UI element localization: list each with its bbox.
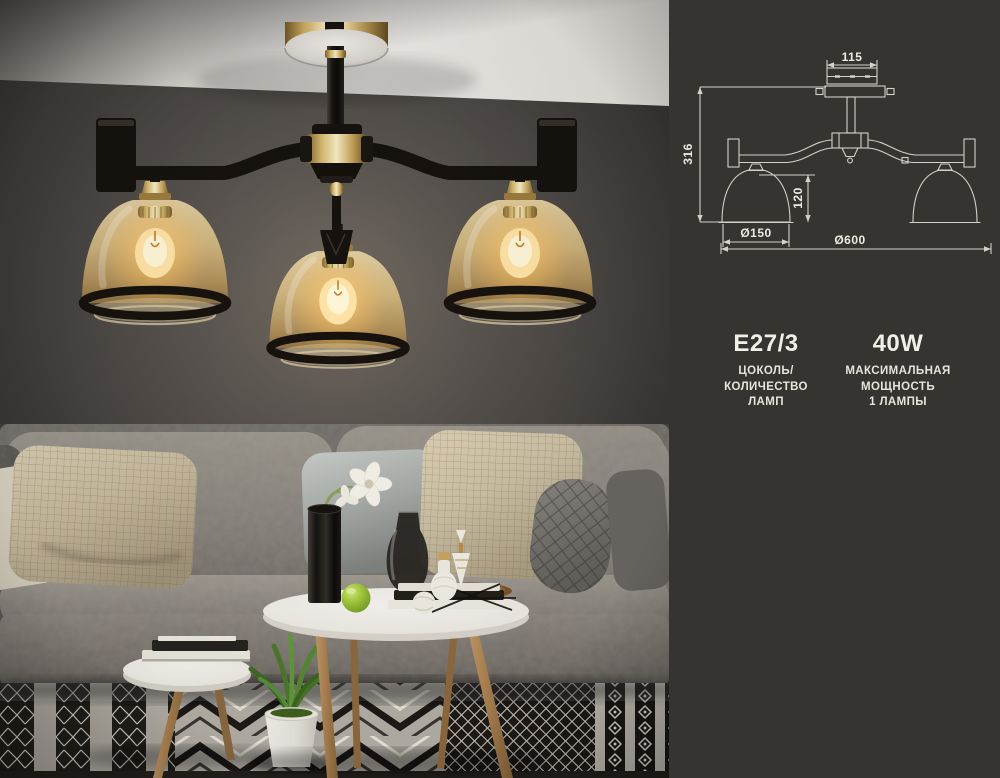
- dim-canopy-width: 115: [842, 50, 863, 64]
- caption-line: МАКСИМАЛЬНАЯ: [815, 364, 981, 380]
- dim-shade-height: 120: [791, 187, 805, 209]
- spec-values: E27/3 ЦОКОЛЬ/ КОЛИЧЕСТВО ЛАМП 40W МАКСИМ…: [669, 331, 1000, 441]
- dim-shade-diameter: Ø150: [740, 226, 771, 240]
- spec-power-caption: МАКСИМАЛЬНАЯ МОЩНОСТЬ 1 ЛАМПЫ: [815, 364, 981, 411]
- drawing-lines: [700, 60, 991, 254]
- dim-fixture-diameter: Ø600: [834, 233, 865, 247]
- spec-max-power: 40W МАКСИМАЛЬНАЯ МОЩНОСТЬ 1 ЛАМПЫ: [815, 331, 981, 411]
- dimension-arrows: [697, 62, 991, 251]
- photo-vignette: [0, 0, 669, 778]
- spec-panel: 115 316 120 Ø150 Ø600 E27/3 ЦОКОЛЬ/ КОЛИ…: [669, 0, 1000, 778]
- room-photo-illustration: [0, 0, 669, 778]
- product-card: 115 316 120 Ø150 Ø600 E27/3 ЦОКОЛЬ/ КОЛИ…: [0, 0, 1000, 778]
- caption-line: 1 ЛАМПЫ: [815, 395, 981, 411]
- spec-power-value: 40W: [815, 331, 981, 357]
- caption-line: МОЩНОСТЬ: [815, 380, 981, 396]
- room-photo-section: [0, 0, 669, 778]
- technical-drawing: 115 316 120 Ø150 Ø600: [669, 30, 1000, 265]
- dim-total-height: 316: [681, 143, 695, 165]
